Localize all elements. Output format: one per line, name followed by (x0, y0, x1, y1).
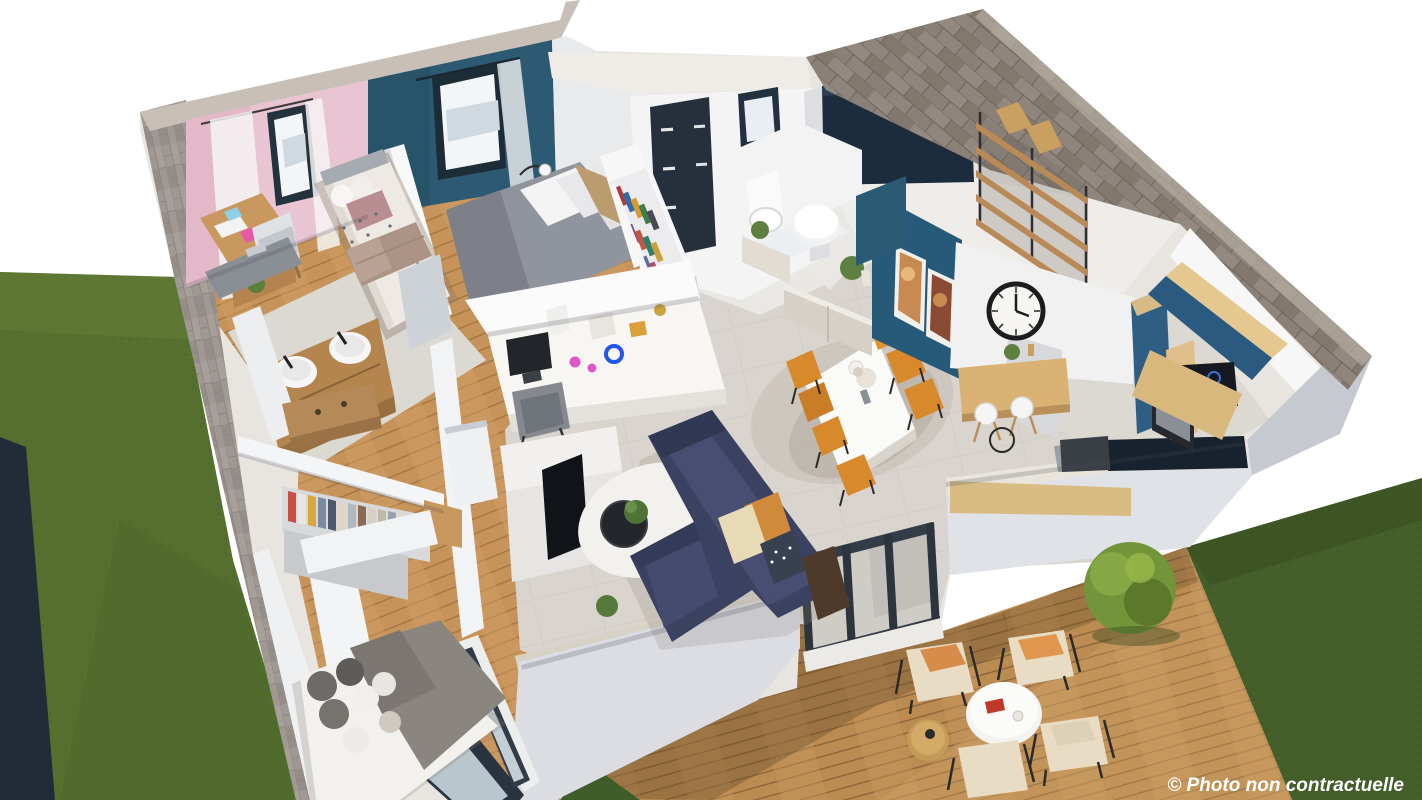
svg-text:© Photo non contractuelle: © Photo non contractuelle (1167, 775, 1404, 796)
